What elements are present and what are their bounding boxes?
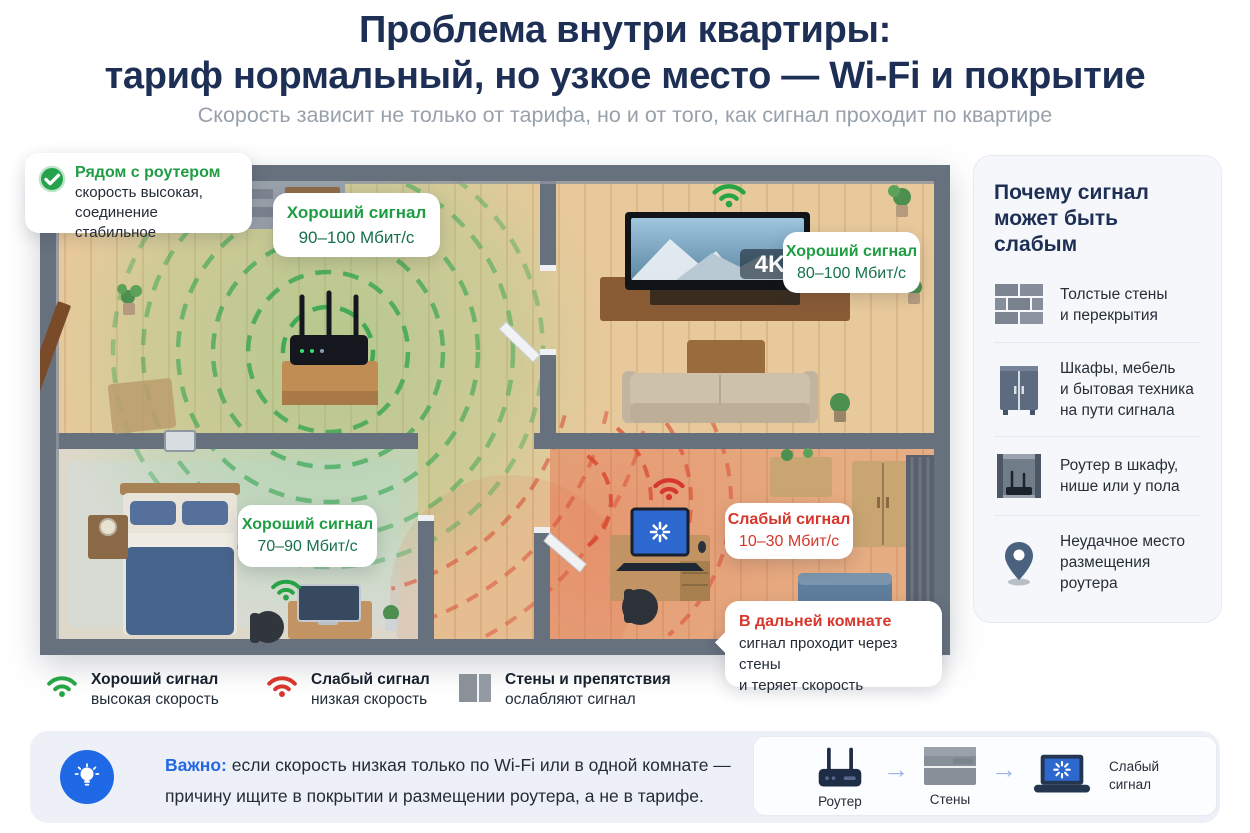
- legend-walls: Стены и препятствияослабляют сигнал: [458, 670, 671, 710]
- router-callout: Рядом с роутером скорость высокая, соеди…: [25, 153, 252, 233]
- sidebar-item-thick-walls: Толстые стеныи перекрытия: [994, 268, 1201, 342]
- router-icon: [811, 743, 869, 793]
- brick-wall-icon: [995, 283, 1043, 327]
- cabinet-icon: [997, 364, 1041, 416]
- check-icon: [38, 165, 66, 193]
- mouse: [698, 541, 706, 553]
- sidebar-item-bad-placement: Неудачное месторазмещения роутера: [994, 515, 1201, 609]
- infographic: Проблема внутри квартиры: тариф нормальн…: [0, 0, 1250, 833]
- sidebar-title: Почему сигналможет быть слабым: [994, 180, 1201, 258]
- important-note-text: Важно: если скорость низкая только по Wi…: [165, 750, 731, 812]
- arrow-icon: →: [883, 756, 909, 782]
- wifi-good-icon: [46, 673, 78, 698]
- lamp: [100, 519, 116, 535]
- flow-router: Роутер: [811, 743, 869, 809]
- lightbulb-icon: [60, 750, 114, 804]
- sidebar-item-router-in-shelf: Роутер в шкафу,нише или у пола: [994, 436, 1201, 515]
- signal-badge-living: Хороший сигнал 80–100 Мбит/с: [783, 232, 920, 293]
- arrow-icon: →: [991, 756, 1017, 782]
- far-room-callout: В дальней комнате сигнал проходит через …: [725, 601, 942, 687]
- laptop-weak-icon: [1031, 752, 1093, 800]
- page-title-line1: Проблема внутри квартиры:: [0, 8, 1250, 52]
- flow-laptop: [1031, 752, 1093, 800]
- tv-4k-label: 4K: [755, 251, 786, 278]
- cause-flow: Роутер → Стены →: [753, 736, 1217, 816]
- router-in-shelf-icon: [995, 452, 1043, 500]
- wifi-weak-icon: [266, 673, 298, 698]
- legend-weak-signal: Слабый сигналнизкая скорость: [266, 670, 430, 710]
- page-subtitle: Скорость зависит не только от тарифа, но…: [0, 103, 1250, 128]
- map-pin-icon: [1001, 540, 1037, 586]
- why-signal-weak-panel: Почему сигналможет быть слабым Толстые с…: [973, 155, 1222, 623]
- callout-title: Рядом с роутером: [75, 163, 242, 183]
- signal-badge-far-room: Слабый сигнал 10–30 Мбит/с: [725, 503, 853, 559]
- signal-badge-hall: Хороший сигнал 90–100 Мбит/с: [273, 193, 440, 257]
- laptop: [632, 509, 688, 555]
- page-title-line2: тариф нормальный, но узкое место — Wi-Fi…: [0, 54, 1250, 98]
- shelf: [770, 457, 832, 497]
- wall-icon: [923, 745, 977, 791]
- important-note-banner: Важно: если скорость низкая только по Wi…: [30, 731, 1220, 823]
- flow-walls: Стены: [923, 745, 977, 807]
- flow-result-label: Слабый сигнал: [1109, 758, 1159, 794]
- signal-badge-bedroom: Хороший сигнал 70–90 Мбит/с: [238, 505, 377, 567]
- legend-good-signal: Хороший сигналвысокая скорость: [46, 670, 219, 710]
- callout-line: соединение стабильное: [75, 203, 242, 243]
- callout-line: скорость высокая,: [75, 183, 242, 203]
- wall-obstacle-icon: [458, 673, 492, 703]
- desktop-computer: [298, 585, 360, 621]
- sidebar-item-furniture: Шкафы, мебельи бытовая техникана пути си…: [994, 342, 1201, 436]
